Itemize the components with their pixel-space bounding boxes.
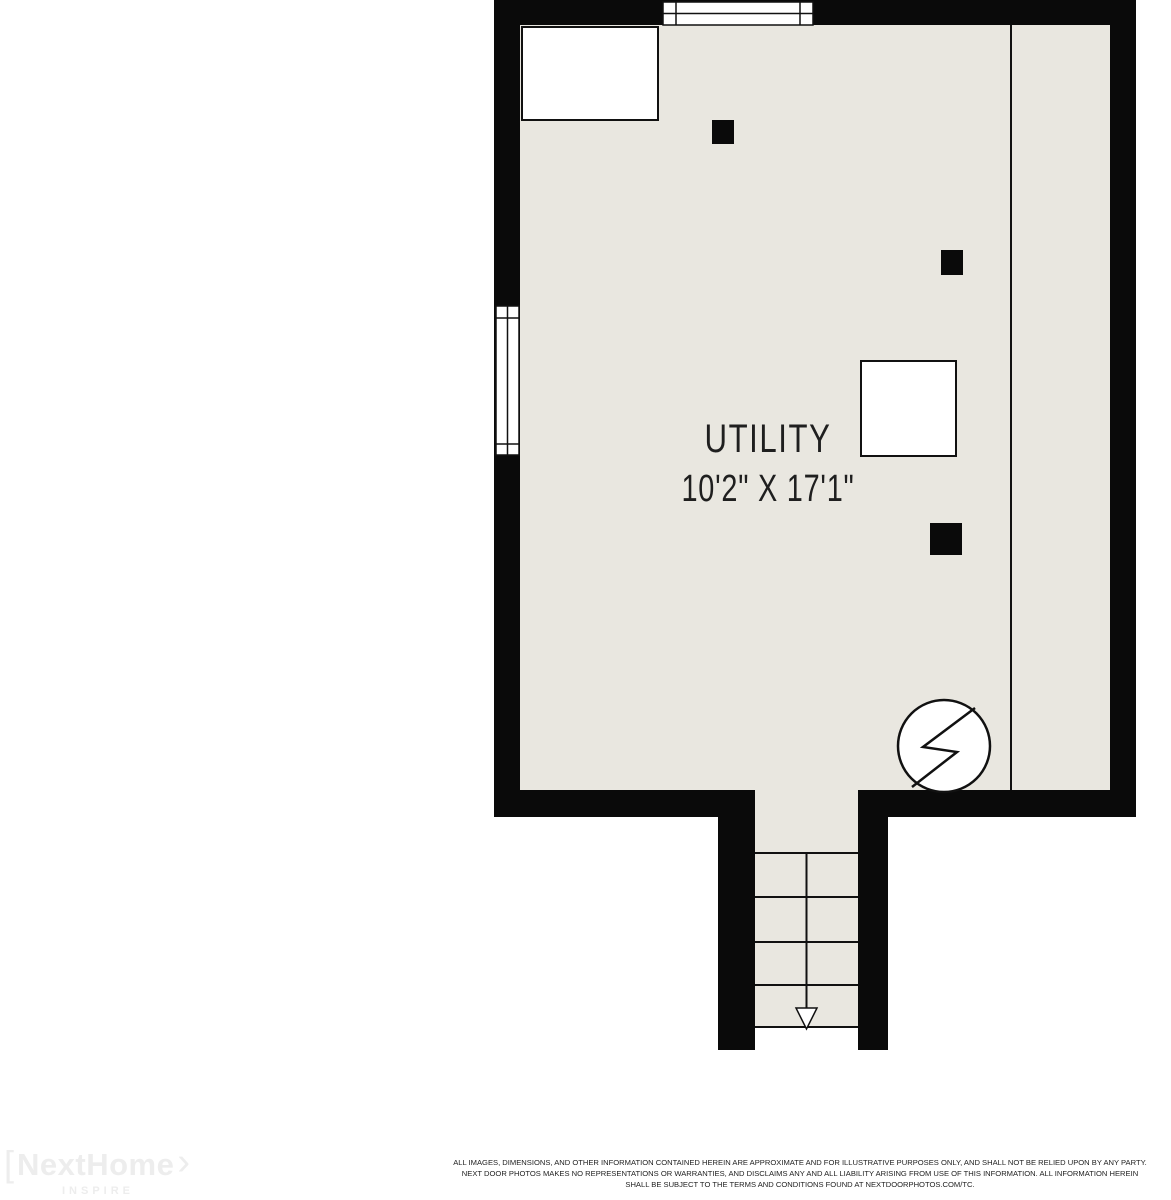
floorplan: UTILITY 10'2" X 17'1" <box>0 0 1171 1200</box>
room-dimensions-label: 10'2" X 17'1" <box>681 467 854 510</box>
logo-tagline: INSPIRE <box>62 1185 190 1197</box>
window-left <box>496 306 519 455</box>
stair-landing-floor <box>755 790 858 853</box>
window-top <box>663 2 813 25</box>
disclaimer-line: NEXT DOOR PHOTOS MAKES NO REPRESENTATION… <box>415 1168 1171 1179</box>
water-heater-icon <box>898 700 990 792</box>
disclaimer-text: ALL IMAGES, DIMENSIONS, AND OTHER INFORM… <box>415 1157 1171 1190</box>
logo-chevron-icon: › <box>177 1143 190 1181</box>
nexthome-logo: [ NextHome › INSPIRE <box>4 1146 190 1197</box>
utility-room-floor <box>520 25 1110 790</box>
logo-brand-text: NextHome <box>17 1149 174 1180</box>
top-left-open-area <box>522 27 658 120</box>
support-post <box>930 523 962 555</box>
disclaimer-line: SHALL BE SUBJECT TO THE TERMS AND CONDIT… <box>415 1179 1171 1190</box>
logo-bracket-icon: [ <box>4 1146 14 1182</box>
room-name-label: UTILITY <box>704 416 831 461</box>
furnace-box <box>861 361 956 456</box>
disclaimer-line: ALL IMAGES, DIMENSIONS, AND OTHER INFORM… <box>415 1157 1171 1168</box>
support-post <box>712 120 734 144</box>
support-post <box>941 250 963 275</box>
